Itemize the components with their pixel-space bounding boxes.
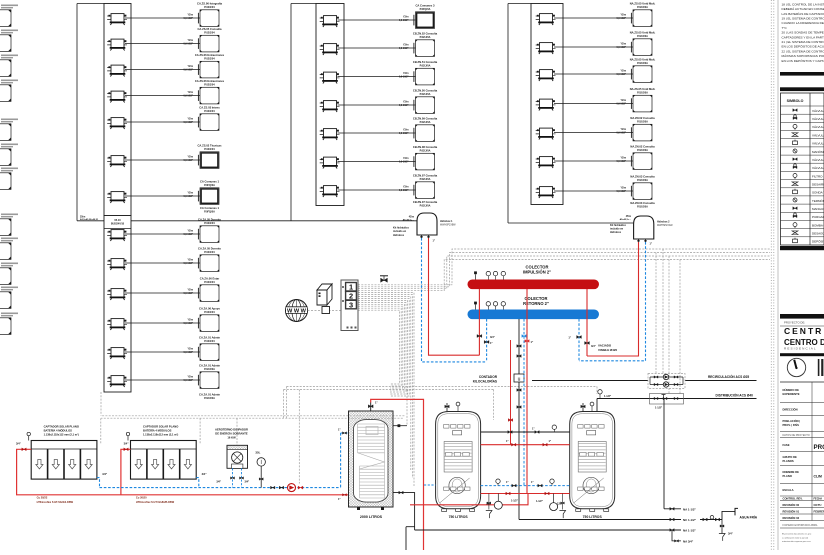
svg-text:MÁXIMAS SOPORTADAS POR L: MÁXIMAS SOPORTADAS POR L <box>782 54 824 58</box>
svg-text:P.02/J/04: P.02/J/04 <box>204 6 215 9</box>
svg-text:CAPTADORES Y EN LA PARTE B: CAPTADORES Y EN LA PARTE B <box>782 35 824 39</box>
svg-text:0,6-10/2": 0,6-10/2" <box>183 122 193 124</box>
svg-text:Y2/m: Y2/m <box>188 377 194 379</box>
svg-text:FECHA: FECHA <box>814 497 823 500</box>
svg-text:P.02/J/0A: P.02/J/0A <box>637 91 648 94</box>
svg-text:Y2/m: Y2/m <box>188 290 194 292</box>
svg-text:NA 3/4": NA 3/4" <box>683 540 694 544</box>
svg-text:CONTADOR: CONTADOR <box>479 375 498 379</box>
svg-text:BUS/24V/10: BUS/24V/10 <box>111 223 125 226</box>
svg-text:P.02/J/0A: P.02/J/0A <box>637 206 648 209</box>
svg-text:FICHERO EXPORTADO ABRIL: FICHERO EXPORTADO ABRIL <box>783 524 819 527</box>
svg-text:DESAIREADOR: DESAIREADOR <box>812 183 824 187</box>
svg-text:VÁLVULA EQUILIBRADO: VÁLVULA EQUILIBRADO <box>812 133 824 137</box>
svg-text:KILOCALORÍAS: KILOCALORÍAS <box>473 378 497 383</box>
svg-text:NA.ZS.05 Unid Mult.: NA.ZS.05 Unid Mult. <box>630 87 656 91</box>
svg-text:Y2/m: Y2/m <box>403 102 409 104</box>
svg-text:autorización expresa por escr: autorización expresa por escr <box>782 540 811 543</box>
svg-text:P.02/J/0A: P.02/J/0A <box>420 121 431 124</box>
svg-text:22 | EL SISTEMA DE CONTROL D: 22 | EL SISTEMA DE CONTROL D <box>782 49 824 53</box>
svg-text:Hidrobox: Hidrobox <box>393 234 405 237</box>
svg-text:CA.ZS.06 Extracciones: CA.ZS.06 Extracciones <box>195 53 225 57</box>
svg-text:CA.ZS.06 fotografía: CA.ZS.06 fotografía <box>197 1 222 5</box>
svg-text:0,6-10/2": 0,6-10/2" <box>399 161 409 163</box>
svg-text:VÁLVULA VACIADO: VÁLVULA VACIADO <box>812 166 824 170</box>
svg-text:2000 LITROS: 2000 LITROS <box>360 515 383 519</box>
svg-text:0,6-10/2": 0,6-10/2" <box>399 105 409 107</box>
svg-text:0,6-10/2": 0,6-10/2" <box>616 161 626 163</box>
svg-text:P.02/J/0A: P.02/J/0A <box>637 179 648 182</box>
svg-text:AGUA FRÍA: AGUA FRÍA <box>740 515 758 520</box>
svg-text:NA.ZS.05 Unid Mult.: NA.ZS.05 Unid Mult. <box>630 30 656 34</box>
svg-text:0,6-10/2": 0,6-10/2" <box>183 263 193 265</box>
svg-text:7°C: 7°C <box>782 26 788 30</box>
svg-text:CB.ZN.52 Consulta: CB.ZN.52 Consulta <box>413 31 438 35</box>
svg-text:P.02/J/0A: P.02/J/0A <box>420 93 431 96</box>
svg-text:CA.ZS.05 Consulta: CA.ZS.05 Consulta <box>197 27 222 31</box>
svg-text:CA.ZA.06 Apoyo: CA.ZA.06 Apoyo <box>199 306 220 310</box>
svg-text:21 | EL SISTEMA DE CONTROL: 21 | EL SISTEMA DE CONTROL <box>782 40 824 44</box>
svg-text:MANÓMETRO: MANÓMETRO <box>812 149 824 154</box>
svg-text:Y2/m: Y2/m <box>188 193 194 195</box>
svg-text:CB.ZN.07 Consulta: CB.ZN.07 Consulta <box>413 200 438 204</box>
svg-text:Y2/m: Y2/m <box>188 349 194 351</box>
svg-text:0,6-10/2": 0,6-10/2" <box>399 76 409 78</box>
svg-text:25/m: 25/m <box>80 216 85 218</box>
svg-text:16 KW: 16 KW <box>227 435 236 439</box>
svg-text:0,6-10/2": 0,6-10/2" <box>183 160 193 162</box>
svg-text:Kit hidráulico: Kit hidráulico <box>393 227 409 230</box>
svg-text:NA.ZS.05 Unid Mult.: NA.ZS.05 Unid Mult. <box>630 1 656 5</box>
svg-text:ESCALA: ESCALA <box>783 488 794 492</box>
svg-text:NC 1-1/2": NC 1-1/2" <box>683 518 697 522</box>
svg-text:incluido en: incluido en <box>393 230 407 233</box>
svg-text:Y2/m: Y2/m <box>621 158 627 160</box>
svg-text:P.02/J/04: P.02/J/04 <box>204 222 215 225</box>
svg-text:0,6-10/2": 0,6-10/2" <box>183 18 193 20</box>
svg-text:3/4": 3/4" <box>102 472 108 476</box>
svg-text:PROYECTO DE:: PROYECTO DE: <box>784 321 805 325</box>
svg-text:3/4": 3/4" <box>245 481 250 484</box>
svg-text:Hidrobox 1: Hidrobox 1 <box>440 220 453 223</box>
svg-text:1": 1" <box>433 239 435 242</box>
svg-text:CONTROL REV.: CONTROL REV. <box>783 496 803 500</box>
svg-text:0,6-10/2": 0,6-10/2" <box>399 190 409 192</box>
svg-text:05.10: 05.10 <box>114 219 121 222</box>
svg-text:0,6-10/2": 0,6-10/2" <box>399 48 409 50</box>
svg-text:Y2/m: Y2/m <box>403 45 409 47</box>
svg-text:CA Comunes 1: CA Comunes 1 <box>200 206 220 210</box>
svg-text:P.02/J/04: P.02/J/04 <box>204 340 215 343</box>
svg-text:NA 1-1/2": NA 1-1/2" <box>683 529 696 533</box>
svg-text:su utilización total o parcial: su utilización total o parcial <box>782 536 809 539</box>
svg-text:0,6-10/2": 0,6-10/2" <box>183 234 193 236</box>
svg-text:NA 1-1/2": NA 1-1/2" <box>683 507 696 511</box>
svg-text:VÁLVULA MOTORIZADA: VÁLVULA MOTORIZADA <box>812 142 824 146</box>
svg-text:3/4": 3/4" <box>728 532 734 536</box>
svg-text:35L: 35L <box>255 451 260 455</box>
svg-text:CUANDO LA DIFERENCIA DE TE: CUANDO LA DIFERENCIA DE TE <box>782 21 824 25</box>
svg-text:NA.ZN.02 Consulta: NA.ZN.02 Consulta <box>630 116 655 120</box>
svg-text:P.0FQ/0A: P.0FQ/0A <box>204 211 215 214</box>
svg-text:19 | EL SISTEMA DE CONTROL A: 19 | EL SISTEMA DE CONTROL A <box>782 17 824 21</box>
svg-text:DATOS DE PROYECTO: DATOS DE PROYECTO <box>783 434 810 437</box>
svg-text:FILTRO: FILTRO <box>812 174 823 178</box>
svg-text:3: 3 <box>349 300 353 309</box>
svg-text:Cu 28/22: Cu 28/22 <box>37 496 48 500</box>
svg-text:NA.ZN.02 Consulta: NA.ZN.02 Consulta <box>630 144 655 148</box>
svg-text:42/m: 42/m <box>409 216 414 219</box>
svg-text:Y2/m: Y2/m <box>188 92 194 94</box>
svg-text:3/4": 3/4" <box>16 442 22 446</box>
svg-text:CB.ZN.09 Consulta: CB.ZN.09 Consulta <box>413 116 438 120</box>
svg-text:u: u <box>518 377 521 383</box>
svg-text:P.02/J/0A: P.02/J/0A <box>637 35 648 38</box>
svg-text:HTKincoflex S HT-52x/E2B-DBW: HTKincoflex S HT-52x/E2B-DBW <box>136 501 175 504</box>
svg-text:RESIDENCIAL: RESIDENCIAL <box>784 347 817 351</box>
svg-text:NOMBRE DE: NOMBRE DE <box>783 470 800 474</box>
svg-text:A5=43,5+...: A5=43,5+... <box>620 218 632 221</box>
svg-text:P.02/J/0A: P.02/J/0A <box>637 62 648 65</box>
svg-text:0,6-10/2": 0,6-10/2" <box>183 95 193 97</box>
svg-text:CA.ZA.06 Estar: CA.ZA.06 Estar <box>200 276 219 280</box>
svg-text:P.02/J/0A: P.02/J/0A <box>637 6 648 9</box>
svg-text:P.02/J/0A: P.02/J/0A <box>204 368 215 371</box>
svg-text:EN LOS DEPÓSITOS DE ACUMU: EN LOS DEPÓSITOS DE ACUMU <box>782 44 824 49</box>
svg-text:CA.ZA.01 Admin: CA.ZA.01 Admin <box>199 363 220 367</box>
svg-text:A5=43,5+...: A5=43,5+... <box>403 219 415 222</box>
svg-text:Y2/m: Y2/m <box>621 100 627 102</box>
svg-text:0,6-10/2": 0,6-10/2" <box>616 191 626 193</box>
svg-text:0,6-10/2": 0,6-10/2" <box>616 74 626 76</box>
svg-text:0,6-10/2": 0,6-10/2" <box>616 132 626 134</box>
svg-text:CAPTADOR SOLAR PLANO: CAPTADOR SOLAR PLANO <box>44 425 79 429</box>
svg-text:PLANO: PLANO <box>783 474 792 478</box>
svg-text:Y2/m: Y2/m <box>188 119 194 121</box>
svg-text:P.02/J/04: P.02/J/04 <box>204 110 215 113</box>
svg-text:EXPEDIENTE: EXPEDIENTE <box>783 392 800 396</box>
svg-text:P.02/J/04: P.02/J/04 <box>204 83 215 86</box>
svg-text:0,6-10/2": 0,6-10/2" <box>183 352 193 354</box>
svg-text:P.02/J/04: P.02/J/04 <box>204 281 215 284</box>
svg-text:0,6-10/2": 0,6-10/2" <box>616 103 626 105</box>
svg-text:0,6-10/2": 0,6-10/2" <box>183 69 193 71</box>
svg-text:SIMBOLO: SIMBOLO <box>787 99 804 103</box>
svg-text:Y2/m: Y2/m <box>403 158 409 160</box>
svg-text:CB.ZN.07 Consulta: CB.ZN.07 Consulta <box>413 173 438 177</box>
svg-text:CA.ZA.01 Admin: CA.ZA.01 Admin <box>199 392 220 396</box>
svg-text:A2,5=45,28+40,51: A2,5=45,28+40,51 <box>80 218 99 221</box>
svg-text:CA.ZA.05 Dormito: CA.ZA.05 Dormito <box>198 246 221 250</box>
svg-text:Hidrobox 2: Hidrobox 2 <box>657 221 670 224</box>
svg-text:P.02/J/04: P.02/J/04 <box>204 31 215 34</box>
svg-text:CAPTADOR SOLAR PLANO: CAPTADOR SOLAR PLANO <box>143 425 178 429</box>
svg-text:VÁLVULA 3 VÍAS: VÁLVULA 3 VÍAS <box>812 158 824 162</box>
svg-text:Cu 26/20: Cu 26/20 <box>136 496 147 500</box>
svg-text:0,6-10/2": 0,6-10/2" <box>399 20 409 22</box>
svg-text:P.02/J/0A: P.02/J/0A <box>637 149 648 152</box>
svg-text:WWHSP2XBW: WWHSP2XBW <box>440 225 456 227</box>
svg-text:AEROTERMO DISIPADOR: AEROTERMO DISIPADOR <box>215 427 248 431</box>
svg-text:Hidrobox: Hidrobox <box>610 231 622 234</box>
svg-text:NA.ZN.03 Consulta: NA.ZN.03 Consulta <box>630 174 655 178</box>
svg-text:El presente documento es pro: El presente documento es pro <box>782 533 812 536</box>
svg-text:CA.ZA.01 Admin: CA.ZA.01 Admin <box>199 335 220 339</box>
svg-text:CA.ZS.03 Intens: CA.ZS.03 Intens <box>199 105 220 109</box>
svg-text:RECIRCULACIÓN ACS Ø25: RECIRCULACIÓN ACS Ø25 <box>708 374 749 379</box>
svg-text:750 LITROS: 750 LITROS <box>449 515 469 519</box>
svg-text:PROY: PROY <box>814 444 824 451</box>
svg-text:CA.ZA.05 Dormito: CA.ZA.05 Dormito <box>198 217 221 221</box>
svg-text:2: 2 <box>349 292 353 301</box>
svg-text:3/4": 3/4" <box>591 344 597 348</box>
svg-text:Y2/m: Y2/m <box>403 187 409 189</box>
svg-text:Y2/m: Y2/m <box>403 17 409 19</box>
svg-text:CB.ZN.08 Consulta: CB.ZN.08 Consulta <box>413 145 438 149</box>
svg-text:VÁLVULA DE SEGURIDAD: VÁLVULA DE SEGURIDAD <box>812 125 824 129</box>
svg-text:Y2/m: Y2/m <box>188 260 194 262</box>
svg-text:Y2/m: Y2/m <box>188 320 194 322</box>
svg-text:Y2/m: Y2/m <box>621 15 627 17</box>
svg-text:CENTR: CENTR <box>784 326 823 336</box>
svg-text:1-1/2": 1-1/2" <box>655 405 663 409</box>
svg-text:Kit hidráulico: Kit hidráulico <box>610 224 626 227</box>
svg-text:3/4": 3/4" <box>216 481 221 484</box>
svg-text:VISIBLE Ø420: VISIBLE Ø420 <box>598 348 618 352</box>
svg-text:PLANOS: PLANOS <box>783 459 794 463</box>
svg-text:NA.ZN.03 Consulta: NA.ZN.03 Consulta <box>630 201 655 205</box>
svg-text:W W W: W W W <box>287 309 307 315</box>
svg-text:BOMBA CIRCULADORA: BOMBA CIRCULADORA <box>812 223 824 227</box>
svg-text:0,6-10/2": 0,6-10/2" <box>183 43 193 45</box>
svg-text:DISTRIBUCIÓN ACS Ø40: DISTRIBUCIÓN ACS Ø40 <box>716 392 754 397</box>
svg-text:CB.ZN.51 Consulta: CB.ZN.51 Consulta <box>413 60 438 64</box>
svg-text:SONDA TEMPERATURA: SONDA TEMPERATURA <box>812 191 824 195</box>
svg-text:TERMÓMETRO: TERMÓMETRO <box>812 198 824 203</box>
svg-text:750 LITROS: 750 LITROS <box>583 515 603 519</box>
svg-text:MANGUITO ELECT.: MANGUITO ELECT. <box>812 207 824 211</box>
svg-text:0,6-10/2": 0,6-10/2" <box>399 133 409 135</box>
svg-text:PURGADOR: PURGADOR <box>812 215 824 219</box>
svg-text:DEBERÁ ACTUAR EN CONSECU: DEBERÁ ACTUAR EN CONSECU <box>782 7 824 11</box>
svg-text:P.0FQ/0A: P.0FQ/0A <box>420 8 431 11</box>
svg-text:0,6-10/2": 0,6-10/2" <box>183 196 193 198</box>
svg-text:1: 1 <box>349 283 353 292</box>
svg-text:FEBRERO: FEBRERO <box>814 509 824 513</box>
svg-text:VÁLVULA DE RETENCIÓN: VÁLVULA DE RETENCIÓN <box>812 116 824 121</box>
svg-text:GRUPO DE: GRUPO DE <box>783 455 798 459</box>
svg-text:3/4": 3/4" <box>202 472 208 476</box>
svg-text:Y2/m: Y2/m <box>188 66 194 68</box>
svg-text:WWHSP2XAW: WWHSP2XAW <box>657 224 673 227</box>
svg-text:CLIM: CLIM <box>814 475 822 479</box>
svg-text:45/m: 45/m <box>626 215 631 218</box>
svg-text:P.02/J/04: P.02/J/04 <box>204 311 215 314</box>
svg-text:VÁLVULA DE ESFERA: VÁLVULA DE ESFERA <box>812 109 824 113</box>
svg-text:1.138x2.118x112 mm (2,1 m²): 1.138x2.118x112 mm (2,1 m²) <box>143 433 178 437</box>
svg-text:0,6-10/2": 0,6-10/2" <box>183 293 193 295</box>
svg-text:DESAGÜE: DESAGÜE <box>812 232 824 236</box>
svg-text:P.02/J/04: P.02/J/04 <box>204 57 215 60</box>
svg-text:Y2/m: Y2/m <box>621 71 627 73</box>
svg-text:0,6-10/2": 0,6-10/2" <box>183 323 193 325</box>
svg-text:20 | LAS SONDAS DE TEMPERAT: 20 | LAS SONDAS DE TEMPERAT <box>782 31 824 35</box>
svg-text:Y2/m: Y2/m <box>621 129 627 131</box>
svg-text:P.02/J/04: P.02/J/04 <box>204 251 215 254</box>
svg-text:3/4": 3/4" <box>124 442 130 446</box>
svg-text:1-1/2": 1-1/2" <box>604 394 612 398</box>
svg-text:CA Comunes 1: CA Comunes 1 <box>200 179 220 183</box>
svg-text:CA.ZS.06 Extracciones: CA.ZS.06 Extracciones <box>195 79 225 83</box>
svg-text:P.02/J/0A: P.02/J/0A <box>420 64 431 67</box>
svg-text:EN LOS DEPÓSITOS Y CAPTA: EN LOS DEPÓSITOS Y CAPTA <box>782 58 824 63</box>
svg-text:CB.ZN.50 Consulta: CB.ZN.50 Consulta <box>413 88 438 92</box>
svg-text:0,6-10/2": 0,6-10/2" <box>183 380 193 382</box>
svg-text:Y2/m: Y2/m <box>621 188 627 190</box>
svg-text:P.02/J/0A: P.02/J/0A <box>420 149 431 152</box>
svg-text:1-1/2": 1-1/2" <box>511 500 519 503</box>
svg-text:CA.ZS.02 Técnicas: CA.ZS.02 Técnicas <box>197 143 222 147</box>
svg-text:HTKincoflex S HT-52x/E2-DBW: HTKincoflex S HT-52x/E2-DBW <box>37 501 74 504</box>
svg-text:CA Comunes 3: CA Comunes 3 <box>415 3 435 7</box>
svg-text:LAS BATERÍAS DE CAPTADORES: LAS BATERÍAS DE CAPTADORES <box>782 12 824 16</box>
svg-text:P.02/J/0A: P.02/J/0A <box>420 36 431 39</box>
svg-text:0,6-10/2": 0,6-10/2" <box>616 18 626 20</box>
svg-text:1": 1" <box>650 243 652 246</box>
svg-text:P.02/J/0A: P.02/J/0A <box>420 205 431 208</box>
svg-text:Y2/m: Y2/m <box>403 73 409 75</box>
svg-text:P.02/J/0A: P.02/J/0A <box>204 397 215 400</box>
svg-text:Y2/m: Y2/m <box>621 44 627 46</box>
svg-text:18 | EL CONTROL DE LA INSTAL: 18 | EL CONTROL DE LA INSTAL <box>782 2 824 6</box>
svg-text:Y2/m: Y2/m <box>188 231 194 233</box>
svg-text:Y2/m: Y2/m <box>188 15 194 17</box>
svg-text:3/4": 3/4" <box>490 335 496 339</box>
svg-text:P.02/J/0A: P.02/J/0A <box>420 178 431 181</box>
svg-text:NA.ZS.05 Unid Mult.: NA.ZS.05 Unid Mult. <box>630 57 656 61</box>
svg-text:FASE: FASE <box>783 443 790 447</box>
svg-text:incluido en: incluido en <box>610 228 624 231</box>
svg-text:DEPÓSITO EXPANSIÓN: DEPÓSITO EXPANSIÓN <box>812 239 824 244</box>
svg-text:P.02/J/04: P.02/J/04 <box>204 148 215 151</box>
svg-text:0,6-10/2": 0,6-10/2" <box>616 47 626 49</box>
svg-text:P.0FQ/0A: P.0FQ/0A <box>204 184 215 187</box>
svg-text:Y2/m: Y2/m <box>403 130 409 132</box>
svg-text:1-1/2": 1-1/2" <box>536 500 544 503</box>
svg-text:OCTU: OCTU <box>814 503 822 507</box>
svg-text:P.02/J/0A: P.02/J/0A <box>637 120 648 123</box>
svg-text:Y2/m: Y2/m <box>188 157 194 159</box>
svg-text:Y2/m: Y2/m <box>188 40 194 42</box>
svg-text:1.138x2.118x112 mm (2,1 m²): 1.138x2.118x112 mm (2,1 m²) <box>44 433 79 437</box>
svg-text:IMPULSIÓN 2": IMPULSIÓN 2" <box>523 270 551 275</box>
